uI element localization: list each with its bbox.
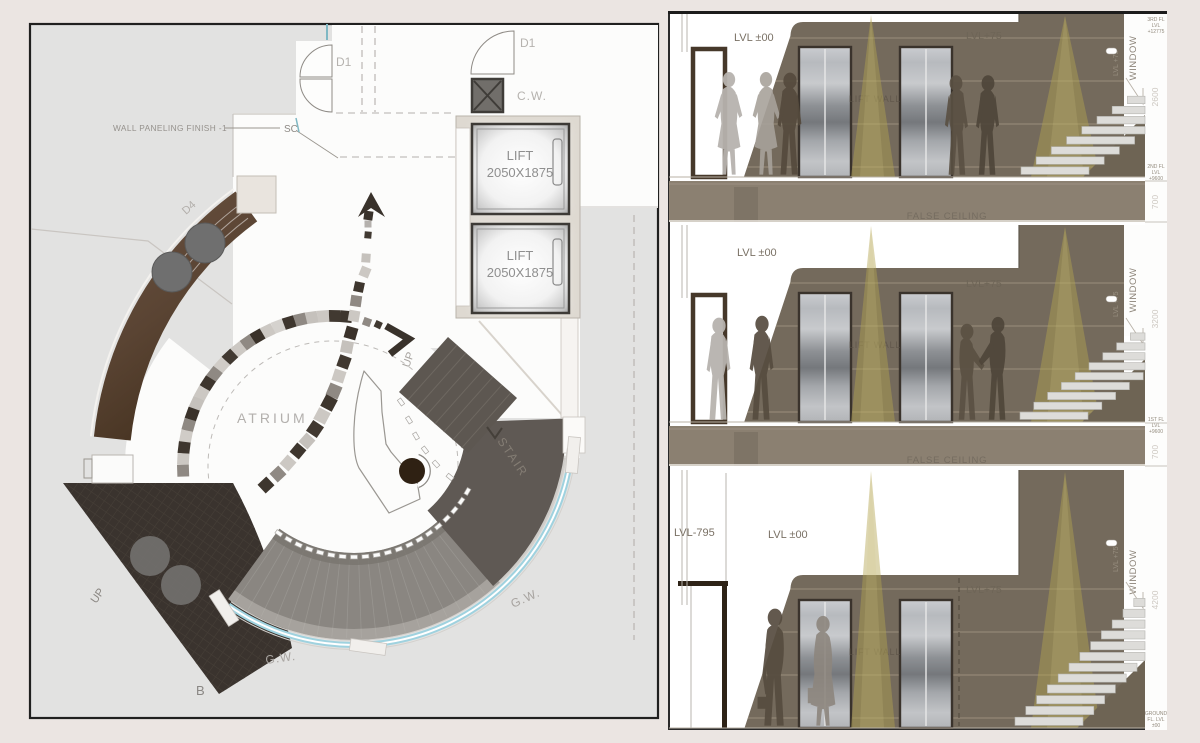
svg-text:WINDOW: WINDOW <box>1128 268 1139 313</box>
svg-text:ATRIUM: ATRIUM <box>237 410 308 426</box>
svg-text:FALSE CEILING: FALSE CEILING <box>907 211 988 222</box>
svg-text:LVL +75: LVL +75 <box>1113 546 1120 572</box>
svg-text:3200: 3200 <box>1150 309 1160 328</box>
svg-text:D1: D1 <box>520 36 536 50</box>
svg-text:4200: 4200 <box>1150 590 1160 609</box>
svg-text:LVL+75: LVL+75 <box>966 584 1002 596</box>
svg-text:SC: SC <box>284 124 298 135</box>
svg-text:+12775: +12775 <box>1148 29 1165 35</box>
svg-text:2050X1875: 2050X1875 <box>487 165 554 180</box>
svg-text:B: B <box>196 683 205 698</box>
svg-text:LVL+75: LVL+75 <box>966 30 1002 42</box>
svg-text:2050X1875: 2050X1875 <box>487 265 554 280</box>
svg-text:LVL-795: LVL-795 <box>674 527 715 539</box>
svg-text:700: 700 <box>1150 445 1160 459</box>
svg-text:C.W.: C.W. <box>517 89 547 103</box>
svg-text:LVL ±00: LVL ±00 <box>768 529 808 541</box>
svg-text:D1: D1 <box>336 55 352 69</box>
svg-text:LIFT: LIFT <box>507 248 534 263</box>
svg-text:WINDOW: WINDOW <box>1128 36 1139 81</box>
svg-text:FALSE CEILING: FALSE CEILING <box>907 455 988 466</box>
svg-text:LIFT: LIFT <box>507 148 534 163</box>
svg-text:LVL +75: LVL +75 <box>1113 291 1120 317</box>
svg-text:2600: 2600 <box>1150 87 1160 106</box>
svg-text:LVL ±00: LVL ±00 <box>734 32 774 44</box>
svg-text:LVL+75: LVL+75 <box>966 278 1002 290</box>
svg-text:LVL ±00: LVL ±00 <box>737 247 777 259</box>
svg-text:+9600: +9600 <box>1149 429 1163 435</box>
svg-text:±00: ±00 <box>1152 723 1161 729</box>
svg-text:WALL PANELING FINISH -1: WALL PANELING FINISH -1 <box>113 123 227 133</box>
svg-text:700: 700 <box>1150 195 1160 209</box>
